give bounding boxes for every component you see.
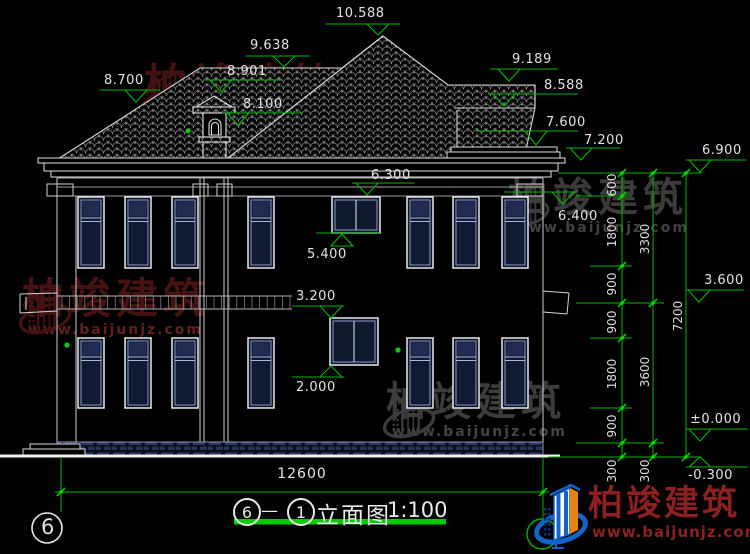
title-dash: — bbox=[261, 501, 278, 521]
level-value: 8.700 bbox=[104, 73, 144, 88]
level-value: 8.588 bbox=[544, 78, 584, 93]
entry-step-lower bbox=[23, 449, 85, 455]
dim-dot bbox=[621, 172, 624, 175]
window bbox=[502, 197, 528, 268]
right-bracket bbox=[543, 291, 569, 314]
level-value: -0.300 bbox=[688, 468, 733, 483]
window-square bbox=[332, 197, 380, 233]
cad-elevation-drawing: 柏竣建筑 www.baijunjz.com 柏竣建筑 www.baijunjz.… bbox=[0, 0, 750, 554]
vertical-dim-value: 900 bbox=[605, 311, 619, 334]
level-value: ±0.000 bbox=[690, 412, 741, 427]
vertical-dim-value: 1800 bbox=[605, 359, 619, 390]
window bbox=[453, 197, 479, 268]
dim-dot bbox=[652, 442, 655, 445]
level-triangle bbox=[498, 69, 520, 81]
window bbox=[248, 197, 274, 268]
dim-dot bbox=[652, 172, 655, 175]
level-triangle bbox=[367, 24, 389, 35]
window bbox=[407, 338, 433, 408]
brand-logo-text: 柏竣建筑 bbox=[588, 487, 740, 522]
overall-width-value: 12600 bbox=[277, 466, 327, 482]
vertical-dim-value: 300 bbox=[605, 460, 619, 483]
right-wing-eave-band bbox=[447, 152, 560, 158]
grid-bubble-left-number: 6 bbox=[41, 515, 55, 539]
dim-dot bbox=[621, 265, 624, 268]
level-triangle bbox=[552, 192, 574, 204]
dormer-body bbox=[203, 113, 226, 137]
vertical-dim-value: 300 bbox=[638, 460, 652, 483]
window bbox=[502, 338, 528, 408]
level-value: 8.100 bbox=[243, 97, 283, 112]
level-triangle bbox=[689, 429, 711, 441]
left-canopy bbox=[20, 293, 57, 313]
level-triangle bbox=[331, 234, 353, 246]
level-triangle bbox=[125, 90, 147, 102]
window bbox=[453, 338, 479, 408]
dim-dot bbox=[621, 302, 624, 305]
entry-step-upper bbox=[30, 444, 80, 449]
window bbox=[248, 338, 274, 408]
main-eave-top bbox=[38, 158, 565, 163]
level-value: 9.638 bbox=[250, 38, 290, 53]
level-triangle bbox=[320, 366, 342, 377]
pilaster-capital bbox=[517, 184, 543, 196]
base bbox=[0, 442, 560, 456]
window bbox=[407, 197, 433, 268]
level-value: 10.588 bbox=[336, 6, 385, 21]
dim-dot bbox=[685, 172, 688, 175]
level-triangle bbox=[273, 56, 295, 67]
level-value: 8.901 bbox=[227, 64, 267, 79]
level-value: 6.900 bbox=[702, 143, 742, 158]
brand-logo-url: www.baijunjz.com bbox=[592, 523, 750, 541]
dim-dot bbox=[621, 442, 624, 445]
brand-logo-icon bbox=[534, 482, 592, 554]
vertical-dim-value: 900 bbox=[605, 273, 619, 296]
level-value: 7.200 bbox=[584, 133, 624, 148]
title-axis-start: 6 bbox=[242, 503, 252, 522]
wall-top-lines bbox=[57, 178, 543, 196]
main-eave-lower bbox=[51, 171, 551, 177]
level-value: 5.400 bbox=[307, 247, 347, 262]
belt-railing bbox=[20, 291, 569, 314]
level-triangle bbox=[689, 457, 711, 467]
window bbox=[125, 338, 151, 408]
level-value: 6.400 bbox=[558, 209, 598, 224]
level-triangle bbox=[689, 160, 711, 172]
dim-dot bbox=[621, 407, 624, 410]
title-axis-bubble-start: 6 bbox=[233, 498, 261, 526]
drawing-scale: 1:100 bbox=[387, 498, 448, 522]
main-eave-band bbox=[44, 163, 558, 171]
window bbox=[172, 338, 198, 408]
window bbox=[172, 197, 198, 268]
dim-dot bbox=[652, 302, 655, 305]
level-value: 3.600 bbox=[704, 273, 744, 288]
window-square bbox=[330, 318, 378, 365]
level-triangle bbox=[356, 183, 378, 195]
window bbox=[125, 197, 151, 268]
vertical-dim-value: 1800 bbox=[605, 217, 619, 248]
level-value: 6.300 bbox=[371, 168, 411, 183]
title-axis-end: 1 bbox=[296, 503, 306, 522]
pilaster-capital bbox=[47, 184, 73, 196]
drawing-title: 立面图 bbox=[316, 496, 391, 530]
dim-dot bbox=[621, 195, 624, 198]
level-triangle bbox=[320, 306, 342, 318]
vertical-dim-value: 600 bbox=[605, 174, 619, 197]
vertical-dim-value: 900 bbox=[605, 415, 619, 438]
dim-dot bbox=[621, 456, 624, 459]
dim-dot bbox=[652, 456, 655, 459]
window bbox=[78, 197, 104, 268]
right-wing-eave-top bbox=[451, 147, 557, 152]
roof-tile-field bbox=[58, 36, 535, 159]
window bbox=[78, 338, 104, 408]
dim-dot bbox=[621, 337, 624, 340]
level-triangle bbox=[570, 148, 592, 160]
title-axis-bubble-end: 1 bbox=[287, 498, 315, 526]
dim-dot bbox=[60, 491, 63, 494]
level-value: 9.189 bbox=[512, 52, 552, 67]
level-triangle bbox=[688, 290, 710, 302]
vertical-dim-value: 3300 bbox=[638, 224, 652, 255]
vertical-dim-value: 7200 bbox=[671, 301, 685, 332]
plinth-band bbox=[57, 442, 543, 455]
level-value: 3.200 bbox=[296, 289, 336, 304]
vertical-dim-value: 3600 bbox=[638, 357, 652, 388]
level-value: 7.600 bbox=[546, 115, 586, 130]
level-value: 2.000 bbox=[296, 380, 336, 395]
dim-dot bbox=[685, 456, 688, 459]
railing-balusters bbox=[62, 296, 290, 309]
